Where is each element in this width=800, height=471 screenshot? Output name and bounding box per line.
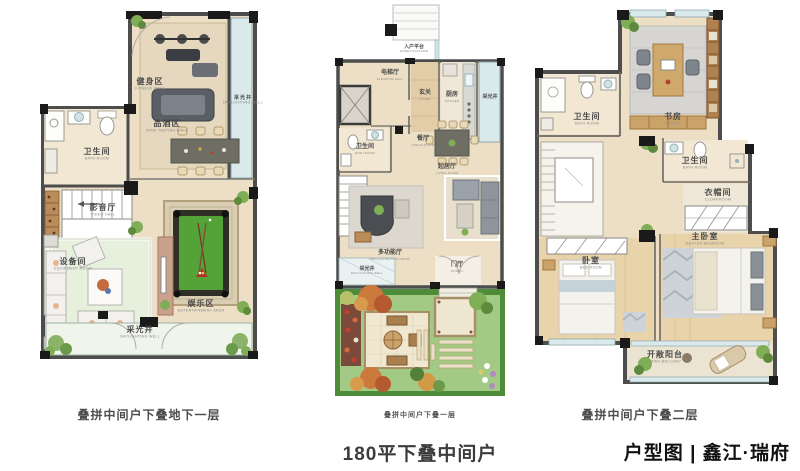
plan-first-floor: 入户平台HOME PLATFORM 电梯厅ELEVATOR HALL 玄关FOY… <box>335 4 505 396</box>
living-room-furniture <box>445 176 499 240</box>
daylight-well-bottom <box>339 258 395 285</box>
foyer-floor <box>411 62 438 132</box>
floorplan-sheet: 健身区FITNESS AREA 采光井DAYLIGHTING WELL 卫生间B… <box>0 0 800 471</box>
porch <box>435 256 481 285</box>
window-strip <box>675 10 709 17</box>
brand-title: 户型图 | 鑫江·瑞府 <box>624 438 790 465</box>
plan-first-floor-drawing <box>335 4 505 396</box>
wine-rack <box>45 191 59 241</box>
plan-basement-drawing <box>40 11 258 377</box>
caption-first-floor: 叠拼中间户下叠一层 <box>335 410 505 420</box>
piano <box>349 186 423 248</box>
tv-console <box>158 237 173 315</box>
unit-size-title: 180平下叠中间户 <box>340 439 500 466</box>
stairs <box>541 142 603 236</box>
daylight-well-bottom <box>45 323 252 356</box>
plan-basement: 健身区FITNESS AREA 采光井DAYLIGHTING WELL 卫生间B… <box>40 11 258 377</box>
plan-second-floor: 书房STUDY 卫生间BATH ROOM 卫生间BATH ROOM 衣帽间CLO… <box>535 8 790 388</box>
study-furniture <box>621 15 719 129</box>
bathroom2-fixtures <box>663 138 750 182</box>
master-bedroom-furniture <box>660 234 776 341</box>
cloakroom-wardrobe <box>683 184 748 232</box>
entry-platform <box>385 5 439 60</box>
garden <box>337 285 503 394</box>
window-strip <box>549 339 615 345</box>
plan-second-floor-drawing <box>535 8 790 388</box>
elevator <box>340 86 370 124</box>
caption-basement: 叠拼中间户下叠地下一层 <box>40 406 258 423</box>
bedroom-furniture <box>539 236 655 341</box>
bathroom1-fixtures <box>537 72 620 136</box>
bathroom-fixtures <box>43 108 128 186</box>
bathroom-fixtures <box>339 128 389 170</box>
billiard-table <box>164 201 238 305</box>
balcony <box>628 341 773 382</box>
caption-second-floor: 叠拼中间户下叠二层 <box>535 406 745 423</box>
stairs <box>62 190 132 242</box>
daylight-well-right <box>479 62 500 142</box>
window-strip <box>630 10 666 17</box>
